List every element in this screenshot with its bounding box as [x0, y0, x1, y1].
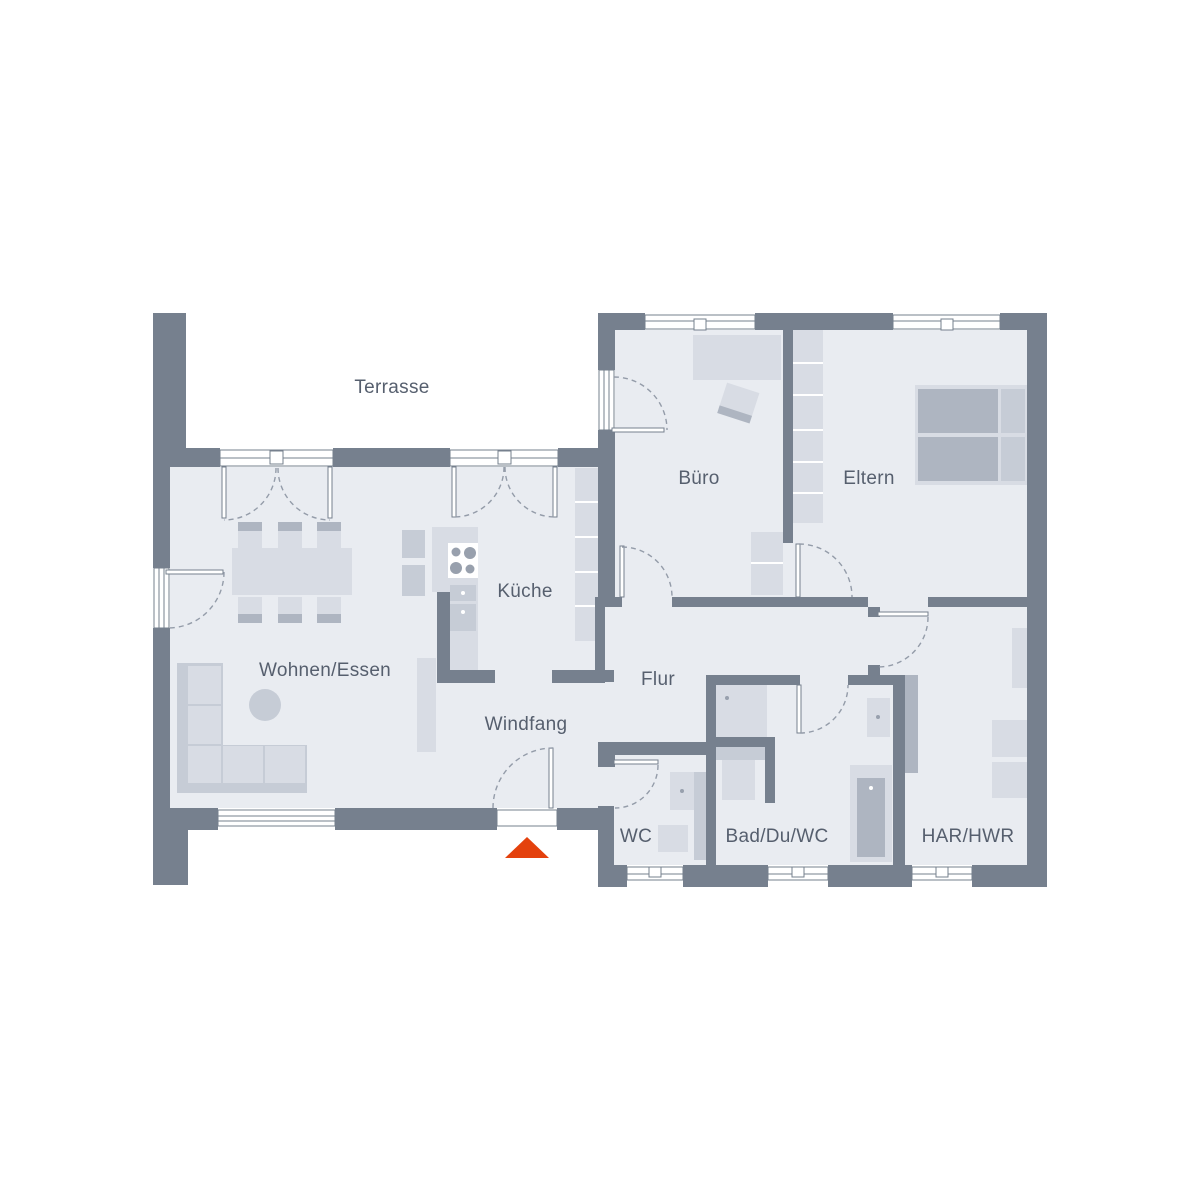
wall-segment [765, 747, 775, 803]
terrace-door-window-kitchen [450, 450, 558, 466]
wall-segment [893, 675, 905, 865]
room-label-bad: Bad/Du/WC [725, 826, 828, 847]
wall-segment [672, 597, 783, 607]
wall-segment [598, 597, 622, 607]
door-leaf [222, 467, 226, 518]
double-bed [915, 385, 1027, 485]
door-leaf [620, 546, 624, 597]
entrance-arrow [505, 837, 549, 858]
room-label-wohnen-essen: Wohnen/Essen [259, 660, 391, 681]
terrace-door-window-living [220, 450, 333, 466]
door-leaf [796, 544, 800, 597]
wc-toilet [670, 772, 694, 810]
wall-segment [605, 742, 706, 755]
window-har-south [912, 867, 972, 880]
terrace-door-office [599, 370, 614, 430]
wall-segment [683, 865, 768, 887]
door-leaf [553, 467, 557, 517]
wall-segment [598, 430, 615, 597]
door-leaf [878, 612, 928, 616]
wall-segment [595, 597, 605, 670]
room-label-wc: WC [620, 826, 652, 847]
shower [716, 684, 767, 737]
wall-segment [755, 313, 893, 330]
wardrobe [793, 330, 823, 523]
door-leaf [166, 570, 223, 574]
sideboard [417, 658, 436, 752]
door-leaf [797, 685, 801, 733]
room-label-kueche: Küche [497, 581, 552, 602]
wall-segment [783, 597, 868, 607]
wall-segment [598, 865, 627, 887]
wall-segment [928, 597, 1027, 607]
wall-segment [972, 865, 1047, 887]
door-leaf [549, 748, 553, 808]
wall-segment [706, 675, 800, 685]
door-leaf [452, 467, 456, 517]
wall-segment [437, 592, 450, 683]
room-label-windfang: Windfang [485, 714, 568, 735]
entrance-door-opening [497, 810, 557, 826]
window-living-west [154, 568, 169, 628]
wall-segment [153, 808, 218, 830]
window-wc-south [627, 867, 683, 880]
wall-segment [598, 806, 614, 865]
door-leaf [328, 467, 332, 518]
window-living-south [218, 810, 335, 826]
desk [693, 335, 781, 380]
room-label-flur: Flur [641, 669, 675, 690]
window-office-north [645, 315, 755, 330]
room-label-eltern: Eltern [843, 468, 894, 489]
bathtub [850, 765, 892, 862]
wall-segment [335, 808, 497, 830]
wall-segment [828, 865, 912, 887]
har-tall-cabinet [905, 675, 918, 773]
floor-plan-drawing: Terrasse Büro Eltern Küche Wohnen/Essen … [0, 0, 1200, 1200]
coffee-table [249, 689, 281, 721]
room-label-terrasse: Terrasse [354, 377, 429, 398]
wall-segment [598, 313, 615, 370]
room-label-har: HAR/HWR [922, 826, 1015, 847]
dining-table [232, 548, 352, 595]
wall-segment [868, 665, 880, 675]
floor-plan-canvas: Terrasse Büro Eltern Küche Wohnen/Essen … [0, 0, 1200, 1200]
wall-segment [449, 670, 495, 683]
door-leaf [612, 428, 664, 432]
wall-segment [333, 448, 450, 467]
har-shelf [1012, 628, 1027, 688]
window-bedroom-north [893, 315, 1000, 330]
wall-segment [153, 448, 170, 568]
office-cupboard [751, 532, 783, 595]
wall-segment [153, 628, 170, 808]
wc-duct [694, 772, 706, 860]
bath-toilet [867, 698, 890, 737]
wc-basin [658, 825, 688, 852]
window-bath-south [768, 867, 828, 880]
door-leaf [614, 760, 658, 764]
wall-segment [715, 737, 775, 747]
wall-segment [783, 330, 793, 543]
wall-segment [595, 670, 614, 682]
wall-segment [153, 313, 186, 448]
room-label-buero: Büro [678, 468, 719, 489]
wall-segment [1027, 313, 1047, 887]
wall-segment [706, 675, 716, 865]
